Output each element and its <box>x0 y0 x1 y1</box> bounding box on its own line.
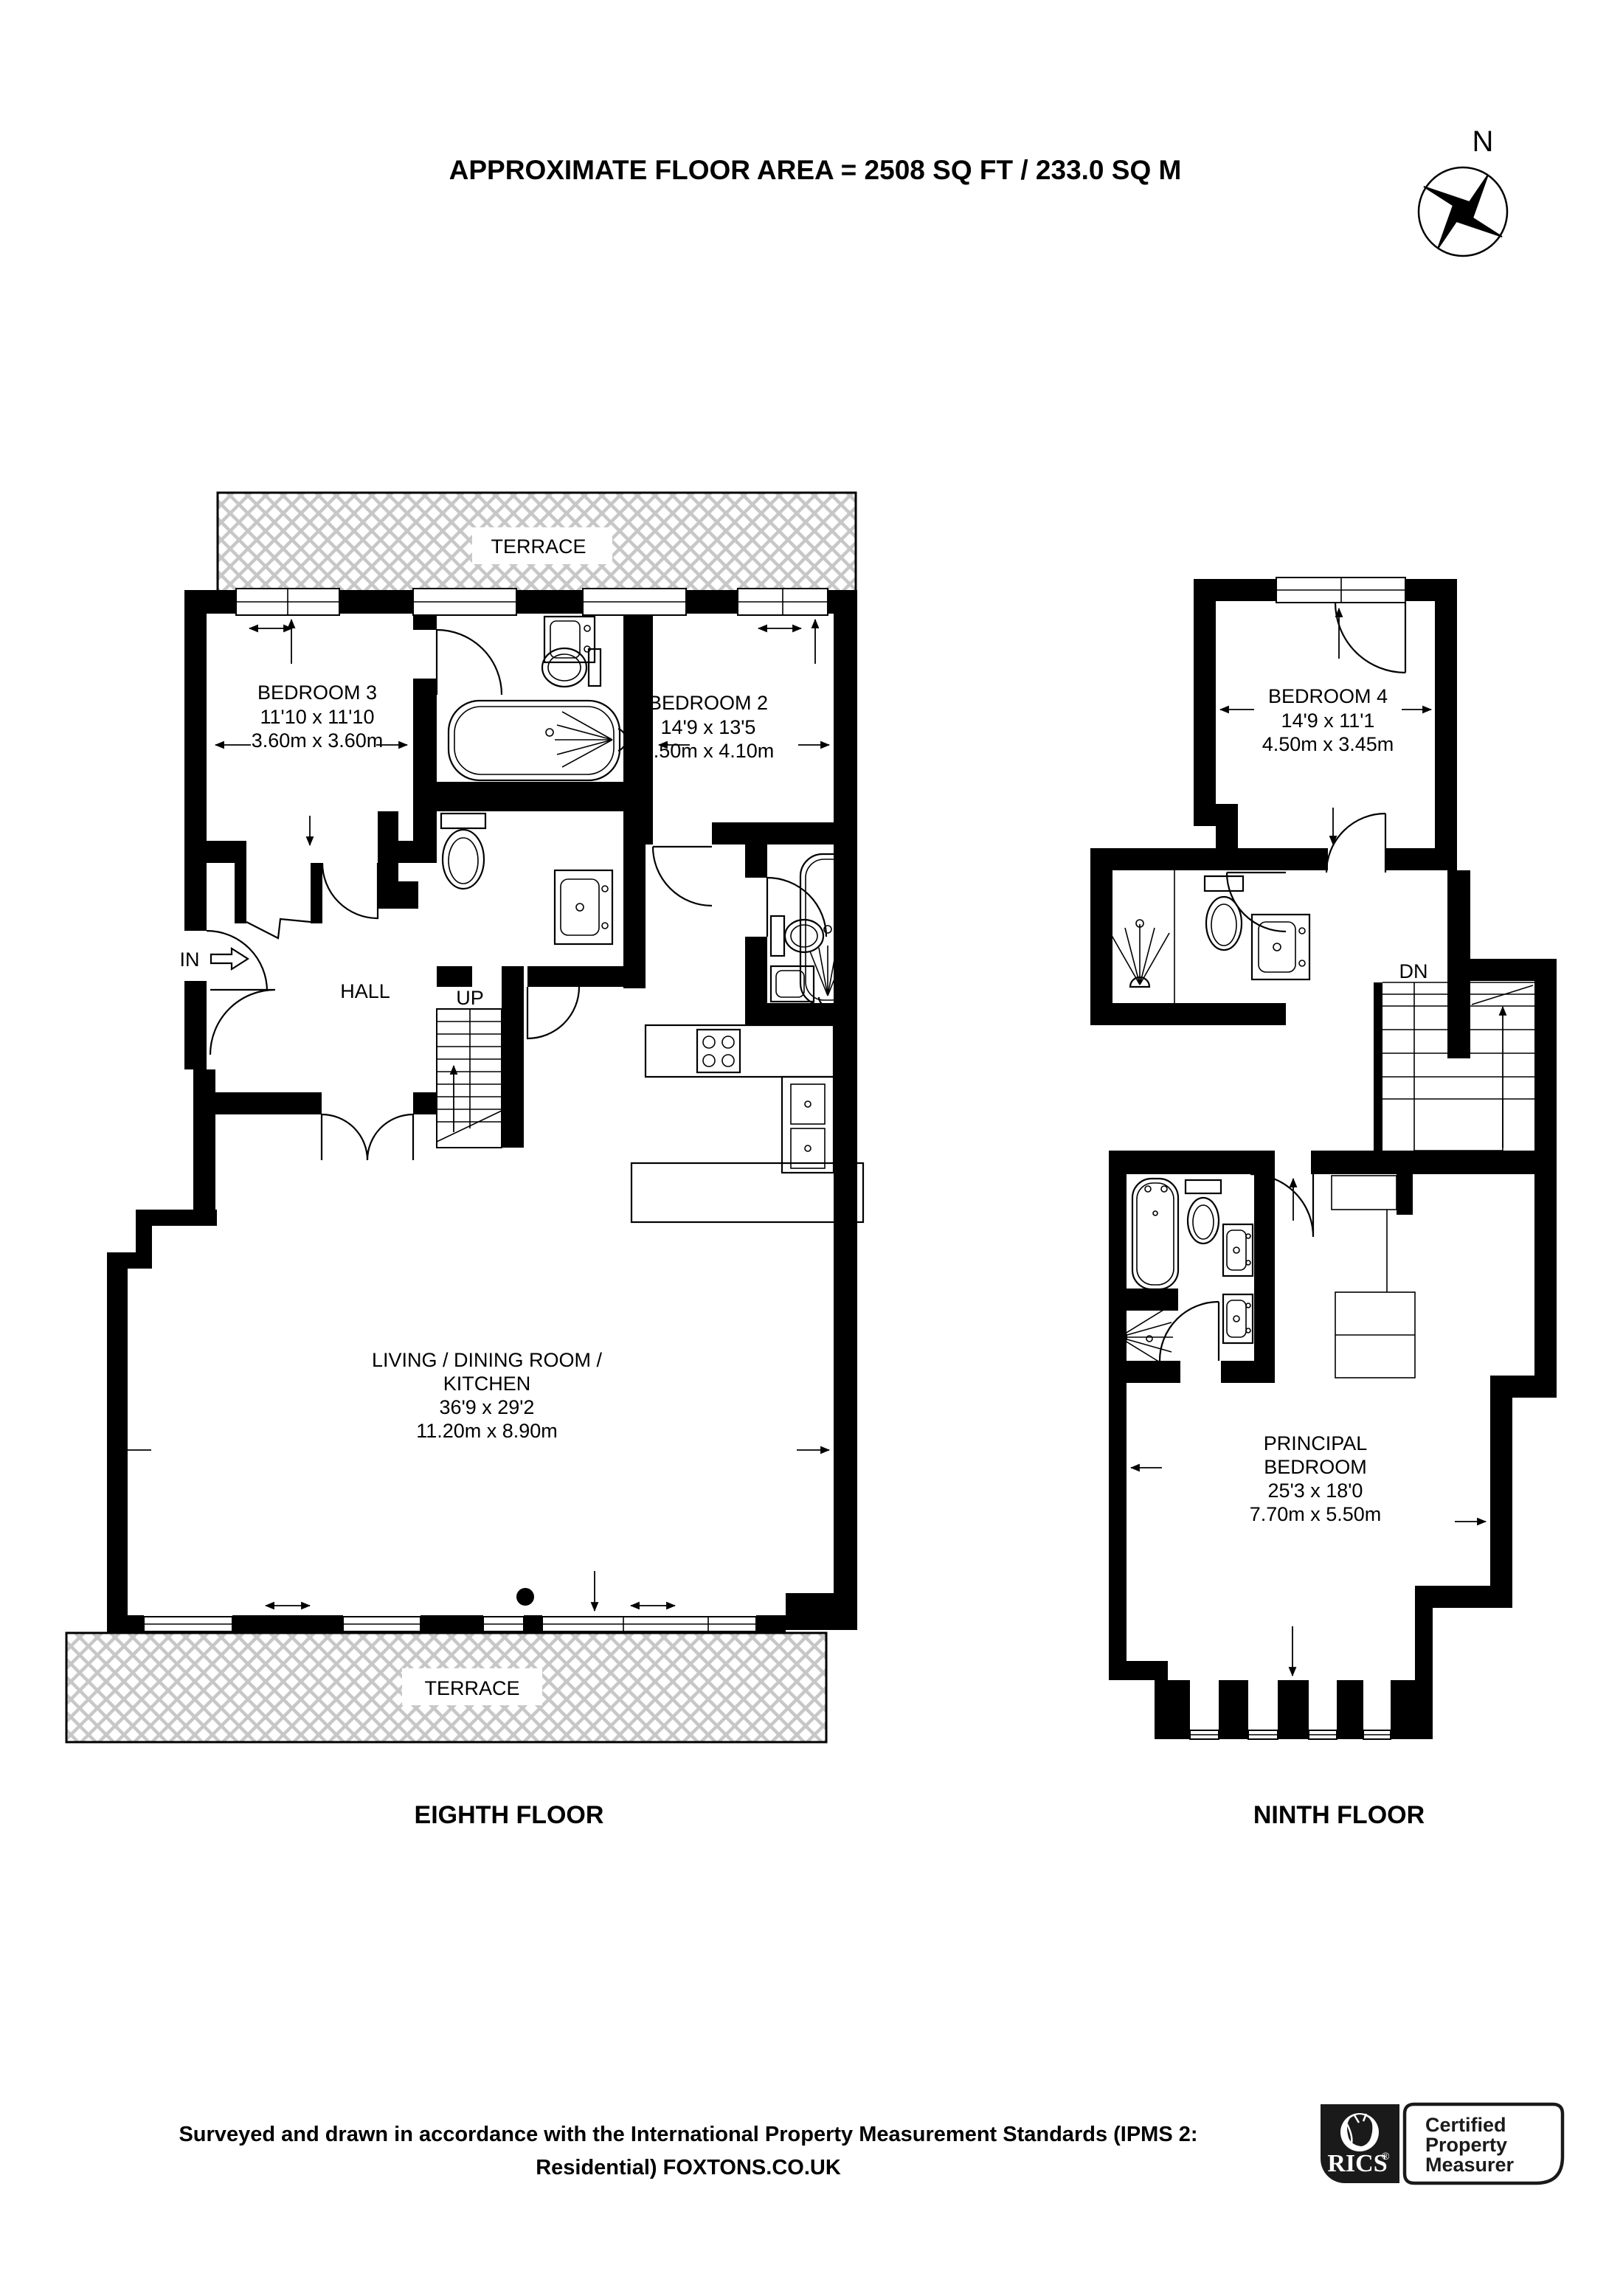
column-dot <box>516 1588 534 1606</box>
terrace-bottom-label: TERRACE <box>424 1677 519 1699</box>
up-label: UP <box>456 987 484 1009</box>
eighth-floor-plan: TERRACE TERRACE <box>66 493 863 1829</box>
in-label: IN <box>180 948 200 971</box>
room-size-imperial: 14'9 x 11'1 <box>1281 710 1375 732</box>
principal-bedroom-label: PRINCIPAL BEDROOM 25'3 x 18'0 7.70m x 5.… <box>1250 1432 1382 1525</box>
footer: Surveyed and drawn in accordance with th… <box>179 2123 1197 2179</box>
hob-icon <box>697 1030 740 1072</box>
shower-icon <box>1110 920 1169 987</box>
floorplan-drawing: APPROXIMATE FLOOR AREA = 2508 SQ FT / 23… <box>0 0 1623 2296</box>
ninth-bathroom-fixtures <box>1110 870 1309 1003</box>
toilet-icon <box>1186 1180 1221 1244</box>
ninth-floor-plan: DN <box>1090 578 1557 1829</box>
room-name-line1: PRINCIPAL <box>1264 1432 1368 1454</box>
room-size-metric: 7.70m x 5.50m <box>1250 1503 1382 1525</box>
eighth-floor-title: EIGHTH FLOOR <box>415 1801 604 1829</box>
bedroom4-window <box>1276 578 1405 603</box>
stairs-up <box>437 1009 502 1148</box>
vanity-sink-icon <box>1223 1294 1253 1343</box>
floorplan-page: APPROXIMATE FLOOR AREA = 2508 SQ FT / 23… <box>0 0 1623 2296</box>
rics-brand: RICS <box>1327 2150 1387 2177</box>
rics-registered-mark: ® <box>1382 2150 1390 2162</box>
room-name-line1: LIVING / DINING ROOM / <box>372 1349 603 1371</box>
room-name-line2: KITCHEN <box>443 1373 531 1395</box>
room-name: BEDROOM 2 <box>648 692 768 714</box>
hall-label: HALL <box>340 980 390 1002</box>
room-size-metric: 11.20m x 8.90m <box>416 1420 558 1442</box>
footer-line2: Residential) FOXTONS.CO.UK <box>536 2156 841 2179</box>
room-size-imperial: 14'9 x 13'5 <box>661 716 756 738</box>
vanity-sink-icon <box>1252 915 1309 979</box>
dn-label: DN <box>1399 960 1428 982</box>
bedroom4-label: BEDROOM 4 14'9 x 11'1 4.50m x 3.45m <box>1262 685 1394 755</box>
toilet-icon <box>1205 876 1243 950</box>
rics-badge: RICS ® Certified Property Measurer <box>1321 2104 1563 2183</box>
page-title: APPROXIMATE FLOOR AREA = 2508 SQ FT / 23… <box>449 155 1182 185</box>
room-size-imperial: 11'10 x 11'10 <box>260 706 375 728</box>
badge-line2: Property <box>1425 2134 1507 2156</box>
room-size-imperial: 36'9 x 29'2 <box>440 1396 535 1418</box>
badge-line1: Certified <box>1425 2114 1506 2136</box>
terrace-top-label: TERRACE <box>491 535 586 558</box>
entry-in-marker: IN <box>180 948 249 971</box>
room-size-metric: 4.50m x 4.10m <box>643 740 775 762</box>
in-arrow-icon <box>211 948 248 969</box>
vanity-sink-icon <box>1223 1224 1253 1276</box>
toilet-icon <box>441 814 485 889</box>
room-size-metric: 4.50m x 3.45m <box>1262 733 1394 755</box>
vanity-sink-icon <box>555 870 612 944</box>
principal-ensuite-fixtures <box>1116 1179 1253 1367</box>
compass-north-label: N <box>1473 125 1494 158</box>
bedroom3-label: BEDROOM 3 11'10 x 11'10 3.60m x 3.60m <box>252 681 384 752</box>
rics-lion-icon <box>1340 2113 1379 2151</box>
toilet-icon <box>771 916 823 956</box>
compass-icon: N <box>1419 125 1507 256</box>
living-label: LIVING / DINING ROOM / KITCHEN 36'9 x 29… <box>372 1349 603 1442</box>
room-size-imperial: 25'3 x 18'0 <box>1268 1480 1363 1502</box>
sink-icon <box>771 966 814 1002</box>
bathtub-icon <box>449 701 626 780</box>
bathroom2-fixtures <box>441 814 612 944</box>
bedroom2-label: BEDROOM 2 14'9 x 13'5 4.50m x 4.10m <box>643 692 775 762</box>
sink-counter <box>782 1077 834 1173</box>
kitchen-units <box>631 1025 863 1222</box>
bathroom1-fixtures <box>449 617 626 780</box>
badge-line3: Measurer <box>1425 2154 1515 2176</box>
bathtub-icon <box>1132 1179 1178 1289</box>
footer-line1: Surveyed and drawn in accordance with th… <box>179 2123 1197 2146</box>
room-name: BEDROOM 3 <box>257 681 377 704</box>
room-name-line2: BEDROOM <box>1264 1456 1367 1478</box>
ninth-floor-title: NINTH FLOOR <box>1253 1801 1425 1829</box>
room-name: BEDROOM 4 <box>1268 685 1388 707</box>
room-size-metric: 3.60m x 3.60m <box>252 729 384 752</box>
